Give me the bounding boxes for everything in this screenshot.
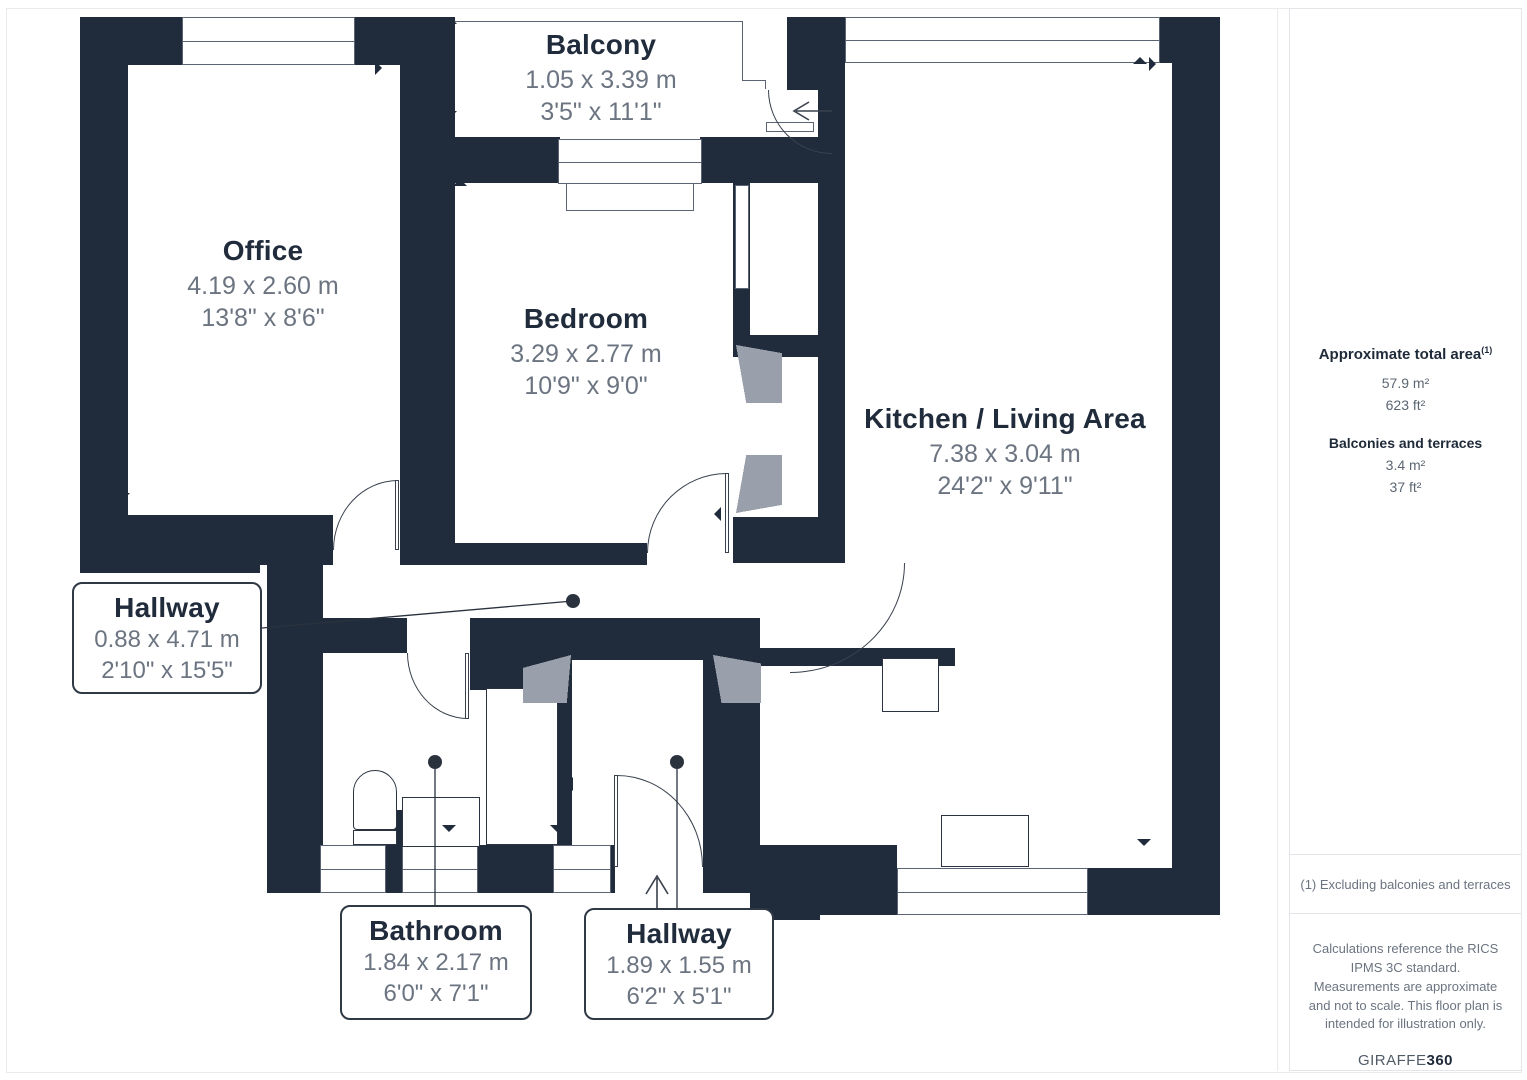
window-glass-line <box>321 869 385 870</box>
wall <box>572 618 703 660</box>
wall <box>80 17 128 565</box>
dimension-marker <box>1137 839 1151 846</box>
wall <box>267 565 323 893</box>
room-size-imperial: 6'0" x 7'1" <box>342 978 530 1009</box>
door-swing-shadow <box>736 455 782 513</box>
window <box>845 17 1160 63</box>
wall <box>355 17 455 65</box>
door-leaf <box>725 473 729 553</box>
dimension-marker <box>303 551 310 565</box>
room-name: Kitchen / Living Area <box>850 404 1160 434</box>
footnote-marker: (1) <box>1481 345 1492 355</box>
balcony-railing <box>742 21 743 81</box>
toilet <box>353 770 397 830</box>
leader-dot-hallway-entry <box>670 755 684 769</box>
room-size-imperial: 2'10" x 15'5" <box>74 655 260 686</box>
dimension-marker <box>1149 57 1156 71</box>
dimension-marker <box>116 493 130 500</box>
door-swing-arc <box>617 775 703 867</box>
wall <box>323 618 407 653</box>
dimension-marker <box>453 179 467 186</box>
room-name: Hallway <box>74 592 260 624</box>
window <box>897 868 1088 915</box>
door-swing-shadow <box>713 655 761 703</box>
room-name: Bathroom <box>342 915 530 947</box>
room-label-kitchen-living: Kitchen / Living Area 7.38 x 3.04 m 24'2… <box>850 404 1160 502</box>
total-area-ft2: 623 ft² <box>1290 397 1521 413</box>
room-size-imperial: 3'5" x 11'1" <box>465 96 737 128</box>
dimension-marker <box>566 777 573 791</box>
room-size-imperial: 24'2" x 9'11" <box>850 470 1160 502</box>
door-leaf <box>614 775 618 867</box>
dimension-marker <box>118 57 132 64</box>
window <box>182 17 355 65</box>
dimension-marker <box>375 61 382 75</box>
dimension-marker <box>307 675 314 689</box>
room-label-bedroom: Bedroom 3.29 x 2.77 m 10'9" x 9'0" <box>450 304 722 402</box>
window <box>558 139 702 184</box>
total-area-heading: Approximate total area(1) <box>1290 345 1521 363</box>
dimension-marker <box>1133 57 1147 64</box>
legal-section: Calculations reference the RICS IPMS 3C … <box>1290 914 1521 1069</box>
room-label-office: Office 4.19 x 2.60 m 13'8" x 8'6" <box>128 236 398 334</box>
room-name: Office <box>128 236 398 266</box>
brand-suffix: 360 <box>1426 1052 1453 1069</box>
room-name: Hallway <box>586 918 772 950</box>
balcony-railing <box>742 80 766 81</box>
room-size-metric: 4.19 x 2.60 m <box>128 270 398 302</box>
window-glass-line <box>898 892 1087 893</box>
dimension-marker <box>443 17 457 24</box>
dimension-marker <box>714 507 721 521</box>
window-glass-line <box>183 41 354 42</box>
room-size-metric: 3.29 x 2.77 m <box>450 338 722 370</box>
dimension-marker <box>713 777 720 791</box>
dimension-marker <box>528 623 542 630</box>
wall <box>400 17 455 565</box>
balconies-m2: 3.4 m² <box>1290 457 1521 473</box>
room-size-imperial: 13'8" x 8'6" <box>128 302 398 334</box>
sink <box>402 797 480 847</box>
door-swing-shadow <box>736 345 782 403</box>
window-glass-line <box>559 162 701 163</box>
wall <box>80 565 260 573</box>
callout-hallway-entry: Hallway 1.89 x 1.55 m 6'2" x 5'1" <box>584 908 774 1020</box>
door-swing-arc <box>333 480 398 550</box>
room-size-imperial: 6'2" x 5'1" <box>586 981 772 1012</box>
room-size-imperial: 10'9" x 9'0" <box>450 370 722 402</box>
window-glass-line <box>846 40 1159 41</box>
callout-bathroom: Bathroom 1.84 x 2.17 m 6'0" x 7'1" <box>340 905 532 1020</box>
wall <box>733 517 845 563</box>
room-name: Balcony <box>465 30 737 60</box>
dimension-marker <box>442 825 456 832</box>
info-sidebar: Approximate total area(1) 57.9 m² 623 ft… <box>1289 8 1522 1071</box>
window <box>320 845 386 893</box>
door-leaf <box>465 653 469 719</box>
callout-hallway-main: Hallway 0.88 x 4.71 m 2'10" x 15'5" <box>72 582 262 694</box>
balconies-ft2: 37 ft² <box>1290 479 1521 495</box>
balconies-label: Balconies and terraces <box>1290 435 1521 451</box>
window <box>566 183 694 211</box>
wall <box>1160 17 1220 63</box>
room-label-balcony: Balcony 1.05 x 3.39 m 3'5" x 11'1" <box>465 30 737 128</box>
dimension-marker <box>550 825 564 832</box>
window-glass-line <box>554 869 610 870</box>
window <box>402 845 478 893</box>
shower <box>486 688 558 845</box>
dimension-marker <box>443 111 457 118</box>
toilet-tank <box>353 830 397 845</box>
dimension-marker <box>838 55 845 69</box>
total-area-m2: 57.9 m² <box>1290 375 1521 391</box>
wall <box>760 845 897 915</box>
total-area-label: Approximate total area <box>1319 346 1482 363</box>
window-glass-line <box>403 869 477 870</box>
room-size-metric: 0.88 x 4.71 m <box>74 624 260 655</box>
footnote-text: (1) Excluding balconies and terraces <box>1290 854 1521 914</box>
room-size-metric: 1.05 x 3.39 m <box>465 64 737 96</box>
room-size-metric: 7.38 x 3.04 m <box>850 438 1160 470</box>
window <box>735 185 749 289</box>
room-name: Bedroom <box>450 304 722 334</box>
window <box>553 845 611 893</box>
leader-dot-hallway <box>566 594 580 608</box>
stove <box>882 658 939 712</box>
leader-dot-bathroom <box>428 755 442 769</box>
tv-bench <box>941 815 1029 867</box>
wall <box>455 137 560 183</box>
door-swing-arc <box>407 653 468 719</box>
disclaimer-text: Calculations reference the RICS IPMS 3C … <box>1307 940 1505 1034</box>
door-leaf <box>395 480 399 550</box>
brand-name: GIRAFFE <box>1358 1052 1427 1069</box>
balcony-railing <box>455 21 743 22</box>
floor-plan-page: { "plan": { "rooms": [ {"id":"office","n… <box>0 0 1527 1080</box>
door-swing-shadow <box>523 655 571 703</box>
dimension-marker <box>567 636 581 643</box>
room-size-metric: 1.89 x 1.55 m <box>586 950 772 981</box>
wall <box>1172 17 1220 915</box>
balcony-railing <box>765 80 766 89</box>
giraffe360-logo: GIRAFFE360 <box>1290 1052 1521 1069</box>
room-size-metric: 1.84 x 2.17 m <box>342 947 530 978</box>
